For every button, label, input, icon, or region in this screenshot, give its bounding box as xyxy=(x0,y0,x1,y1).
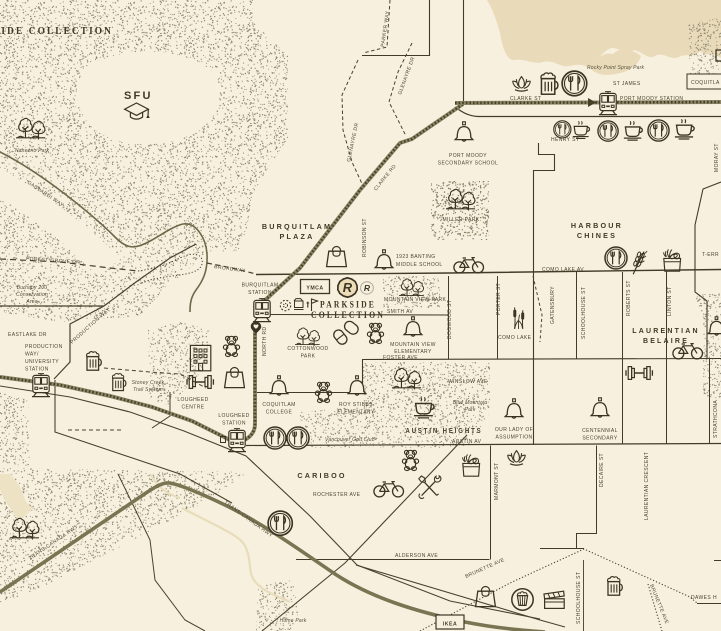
svg-text:UNIVERSITY: UNIVERSITY xyxy=(25,359,59,365)
svg-text:Blue Mountain: Blue Mountain xyxy=(453,400,488,406)
svg-text:SCHOOLHOUSE ST: SCHOOLHOUSE ST xyxy=(581,287,587,339)
svg-text:MOUNTAIN VIEW PARK: MOUNTAIN VIEW PARK xyxy=(384,297,447,303)
svg-text:SFU: SFU xyxy=(124,90,153,102)
svg-text:Park: Park xyxy=(464,407,475,413)
svg-text:SMITH AV: SMITH AV xyxy=(387,309,413,315)
svg-text:AUSTIN HEIGHTS: AUSTIN HEIGHTS xyxy=(406,428,483,435)
svg-text:LINTON ST: LINTON ST xyxy=(667,286,673,316)
svg-text:ROBERTS ST: ROBERTS ST xyxy=(626,280,632,316)
svg-text:ROBINSON ST: ROBINSON ST xyxy=(362,218,368,257)
svg-text:Area: Area xyxy=(25,299,37,305)
svg-text:1923 BANTING: 1923 BANTING xyxy=(396,254,436,260)
svg-text:COLLEGE: COLLEGE xyxy=(266,410,293,416)
svg-text:GATENSBURY: GATENSBURY xyxy=(550,286,556,324)
svg-text:PORT MOODY: PORT MOODY xyxy=(449,153,487,159)
svg-text:CENTRE: CENTRE xyxy=(182,405,205,411)
svg-text:DECAIRE ST: DECAIRE ST xyxy=(599,453,605,487)
svg-text:FOSTER AVE: FOSTER AVE xyxy=(383,355,418,361)
svg-text:COLLECTION: COLLECTION xyxy=(311,310,385,320)
svg-text:NORTH RD: NORTH RD xyxy=(262,327,268,357)
svg-text:ALDERSON AVE: ALDERSON AVE xyxy=(395,553,438,559)
svg-text:Stoney Creek: Stoney Creek xyxy=(132,380,165,386)
svg-text:PARKSIDE: PARKSIDE xyxy=(320,300,376,310)
svg-text:BURQUITLAM: BURQUITLAM xyxy=(242,283,279,289)
svg-text:Burnaby 200: Burnaby 200 xyxy=(17,285,48,291)
svg-text:EASTLAKE DR: EASTLAKE DR xyxy=(8,332,47,338)
svg-text:PARK: PARK xyxy=(301,354,316,360)
svg-text:T-ERR: T-ERR xyxy=(702,252,719,258)
svg-text:STATION: STATION xyxy=(25,367,49,373)
svg-text:ROY STIBBS: ROY STIBBS xyxy=(339,402,373,408)
svg-text:ASSUMPTION: ASSUMPTION xyxy=(495,435,532,441)
svg-text:PARKSIDE COLLECTION: PARKSIDE COLLECTION xyxy=(0,25,113,37)
svg-text:Vancouver Golf Club: Vancouver Golf Club xyxy=(325,437,375,443)
svg-text:CHINES: CHINES xyxy=(577,231,617,240)
svg-text:COTTONWOOD: COTTONWOOD xyxy=(287,346,328,352)
svg-text:Trail System: Trail System xyxy=(133,387,163,393)
svg-text:MARMONT ST: MARMONT ST xyxy=(494,462,500,500)
svg-text:IKEA: IKEA xyxy=(443,622,457,628)
svg-text:OUR LADY OF: OUR LADY OF xyxy=(495,427,533,433)
svg-text:STATION: STATION xyxy=(222,421,246,427)
svg-text:MILLER PARK: MILLER PARK xyxy=(442,217,479,223)
svg-text:ST JAMES: ST JAMES xyxy=(613,81,641,87)
svg-text:LOUGHEED: LOUGHEED xyxy=(218,413,249,419)
svg-text:MOUNTAIN VIEW: MOUNTAIN VIEW xyxy=(390,342,436,348)
svg-text:HARBOUR: HARBOUR xyxy=(571,221,623,230)
svg-text:ELEMENTARY: ELEMENTARY xyxy=(337,410,375,416)
svg-text:WINSLOW AVE: WINSLOW AVE xyxy=(448,379,488,385)
svg-text:COMO LAKE: COMO LAKE xyxy=(498,335,532,341)
svg-text:STATION: STATION xyxy=(248,290,272,296)
svg-text:SECONDARY SCHOOL: SECONDARY SCHOOL xyxy=(438,161,498,167)
svg-text:AUSTIN AV: AUSTIN AV xyxy=(452,439,482,445)
svg-text:BURQUITLAM: BURQUITLAM xyxy=(262,222,332,231)
svg-text:YMCA: YMCA xyxy=(306,286,323,292)
svg-text:MORAY ST: MORAY ST xyxy=(714,143,720,172)
svg-text:PLAZA: PLAZA xyxy=(280,232,315,241)
svg-text:SECONDARY: SECONDARY xyxy=(582,436,617,442)
svg-text:LOUGHEED: LOUGHEED xyxy=(177,397,208,403)
svg-text:CENTENNIAL: CENTENNIAL xyxy=(582,428,618,434)
svg-text:COQUITLA: COQUITLA xyxy=(691,80,720,86)
svg-text:Naheeno Park: Naheeno Park xyxy=(15,148,50,154)
svg-text:DAWES H: DAWES H xyxy=(691,595,717,601)
svg-text:MIDDLE SCHOOL: MIDDLE SCHOOL xyxy=(396,262,443,268)
svg-text:WAY/: WAY/ xyxy=(25,352,39,358)
svg-text:CARIBOO: CARIBOO xyxy=(297,471,346,480)
svg-text:PORTER ST: PORTER ST xyxy=(496,283,502,315)
svg-text:ROCHESTER AVE: ROCHESTER AVE xyxy=(313,492,361,498)
svg-text:Rocky Point Spray Park: Rocky Point Spray Park xyxy=(587,65,644,71)
svg-text:COMO LAKE AV: COMO LAKE AV xyxy=(542,267,584,273)
svg-text:DOGWOOD ST: DOGWOOD ST xyxy=(447,300,453,339)
svg-text:PORT MOODY STATION: PORT MOODY STATION xyxy=(620,96,683,102)
svg-text:SCHOOLHOUSE ST: SCHOOLHOUSE ST xyxy=(576,572,582,624)
svg-text:LAURENTIAN: LAURENTIAN xyxy=(632,328,700,335)
svg-text:Hume Park: Hume Park xyxy=(280,618,307,624)
svg-text:Conservation: Conservation xyxy=(16,292,48,298)
svg-text:STRATHCONA: STRATHCONA xyxy=(713,400,719,438)
svg-text:LAURENTIAN CRESCENT: LAURENTIAN CRESCENT xyxy=(644,452,650,520)
svg-text:COQUITLAM: COQUITLAM xyxy=(262,402,295,408)
svg-text:PRODUCTION: PRODUCTION xyxy=(25,344,63,350)
svg-text:CLARKE ST: CLARKE ST xyxy=(510,96,541,102)
